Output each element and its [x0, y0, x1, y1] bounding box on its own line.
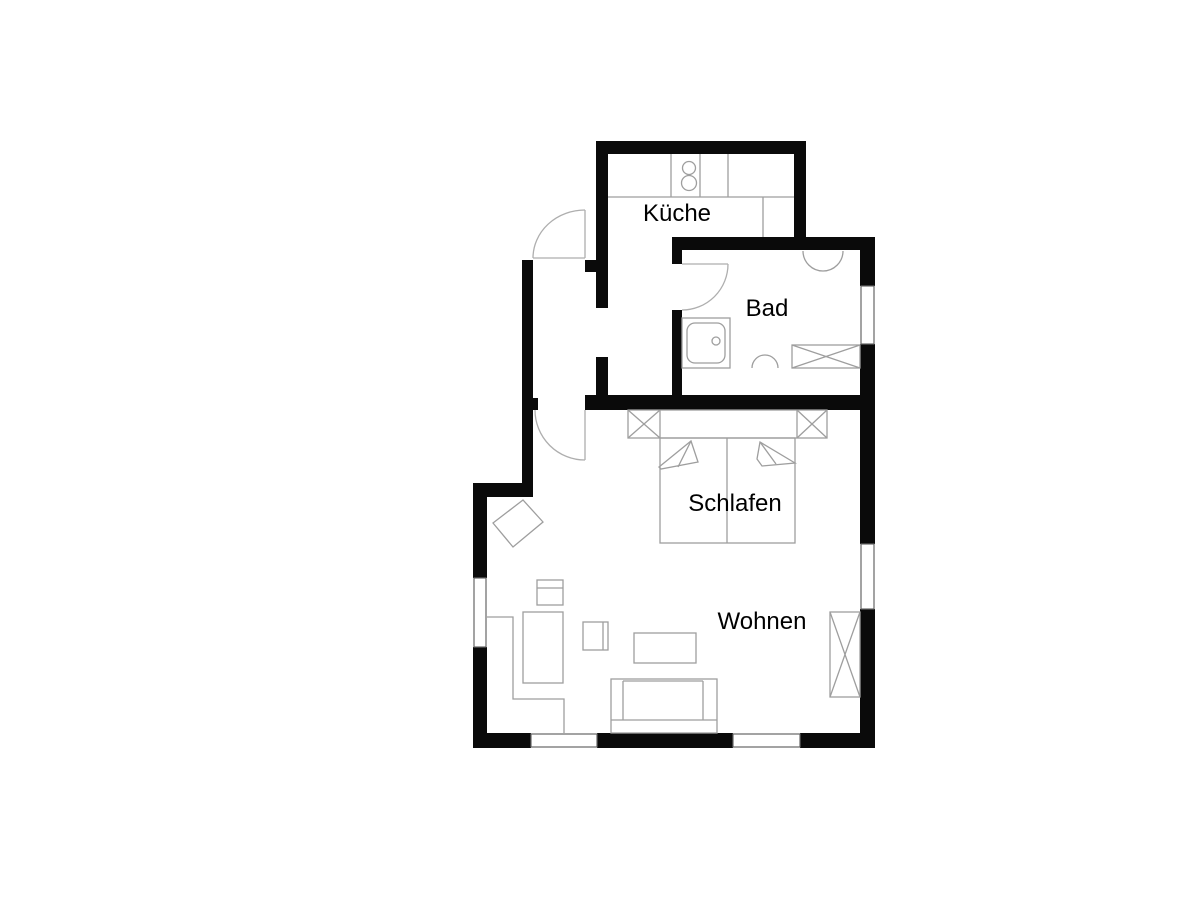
room-label-bad: Bad — [746, 295, 789, 322]
floorplan-page: Küche Bad Schlafen Wohnen — [0, 0, 1200, 900]
stove-burner-icon — [682, 176, 697, 191]
room-label-kueche: Küche — [643, 200, 711, 227]
wall-right-lower — [860, 609, 875, 748]
window-bottom-1 — [531, 734, 597, 747]
wall-bottom-1 — [473, 733, 531, 748]
shower-drain-icon — [712, 337, 720, 345]
coffee-table — [634, 633, 696, 663]
wall-entry-stub — [585, 260, 596, 272]
wall-bath-left-upper — [672, 250, 682, 264]
side-sofa — [523, 612, 563, 683]
walls — [473, 141, 875, 748]
wall-bath-top — [672, 237, 875, 250]
bench-outline — [487, 617, 564, 733]
pillow-fold — [760, 442, 776, 464]
wall-kitchen-left-upper — [596, 141, 608, 308]
wall-bath-right-upper — [860, 250, 875, 286]
wall-central — [585, 395, 875, 410]
wall-right-upper — [860, 410, 875, 544]
floorplan-drawing: Küche Bad Schlafen Wohnen — [0, 0, 1200, 900]
wall-corridor-left — [522, 260, 533, 497]
wall-kitchen-right — [794, 141, 806, 250]
side-table — [583, 622, 608, 650]
room-labels: Küche Bad Schlafen Wohnen — [643, 200, 807, 635]
living-door-arc — [535, 410, 585, 460]
sofa — [611, 679, 717, 733]
wall-bath-left-lower — [672, 310, 682, 396]
window-right-living — [861, 544, 874, 609]
armchair-rotated — [493, 500, 543, 547]
bedroom-furniture — [628, 410, 827, 543]
bath-door-arc — [682, 264, 728, 310]
wash-basin-icon — [803, 251, 843, 271]
window-bottom-2 — [733, 734, 800, 747]
room-label-schlafen: Schlafen — [688, 490, 781, 517]
stove-burner-icon — [683, 162, 696, 175]
window-left — [474, 578, 486, 647]
wall-step — [487, 483, 532, 497]
wall-kitchen-top — [596, 141, 806, 154]
room-label-wohnen: Wohnen — [718, 608, 807, 635]
wall-outer-left-lower — [473, 647, 487, 748]
wall-kitchen-left-lower — [596, 357, 608, 398]
wall-bath-right-lower — [860, 344, 875, 396]
entry-door-arc — [533, 210, 585, 258]
window-right-bath — [861, 286, 874, 344]
toilet-icon — [752, 355, 778, 368]
wall-bottom-2 — [597, 733, 733, 748]
cabinet — [537, 580, 563, 605]
wall-outer-left-upper — [473, 483, 487, 578]
